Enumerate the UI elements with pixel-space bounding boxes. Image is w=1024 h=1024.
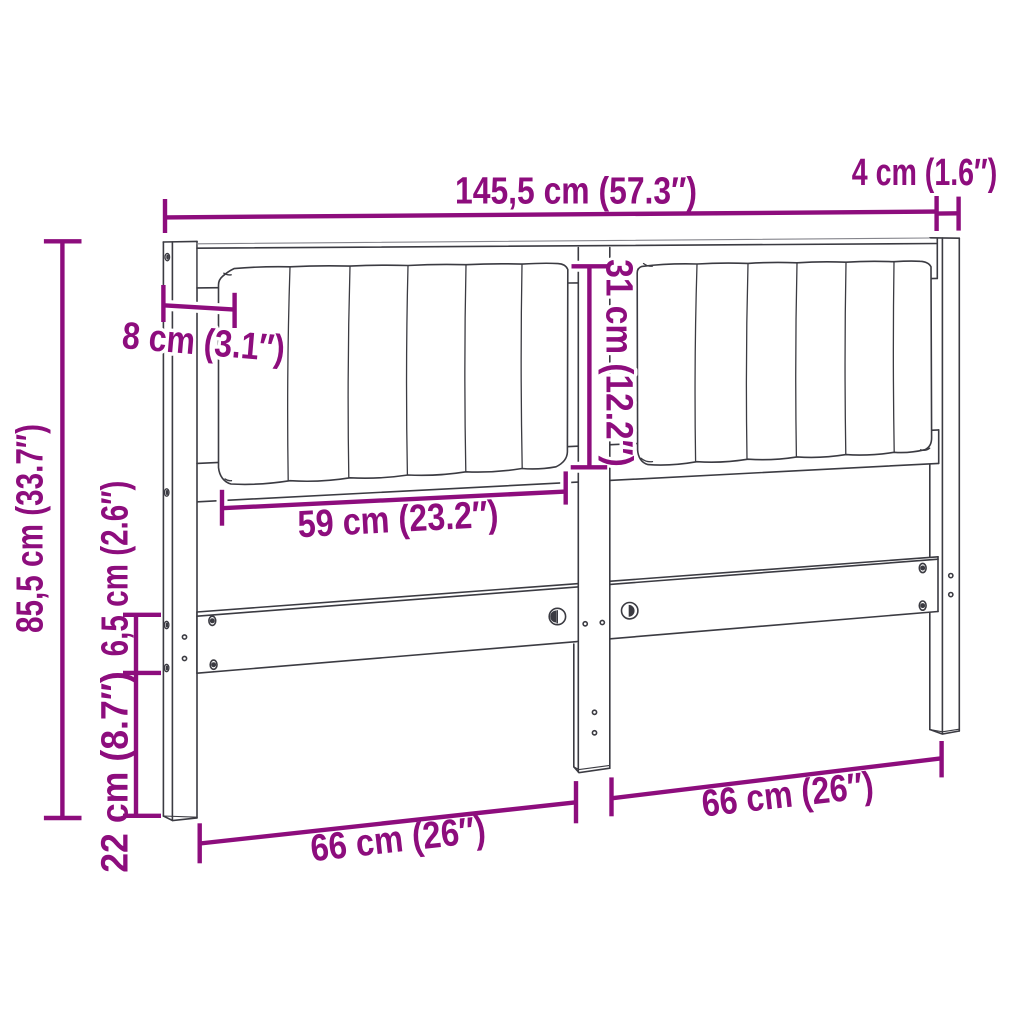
svg-text:31 cm (12.2″): 31 cm (12.2″): [598, 259, 640, 467]
svg-text:85,5 cm (33.7″): 85,5 cm (33.7″): [10, 424, 52, 633]
svg-text:4 cm (1.6″): 4 cm (1.6″): [852, 152, 998, 194]
svg-text:6,5 cm (2.6″): 6,5 cm (2.6″): [95, 481, 137, 657]
svg-text:22 cm (8.7″): 22 cm (8.7″): [95, 671, 137, 873]
svg-text:145,5 cm (57.3″): 145,5 cm (57.3″): [455, 171, 697, 213]
